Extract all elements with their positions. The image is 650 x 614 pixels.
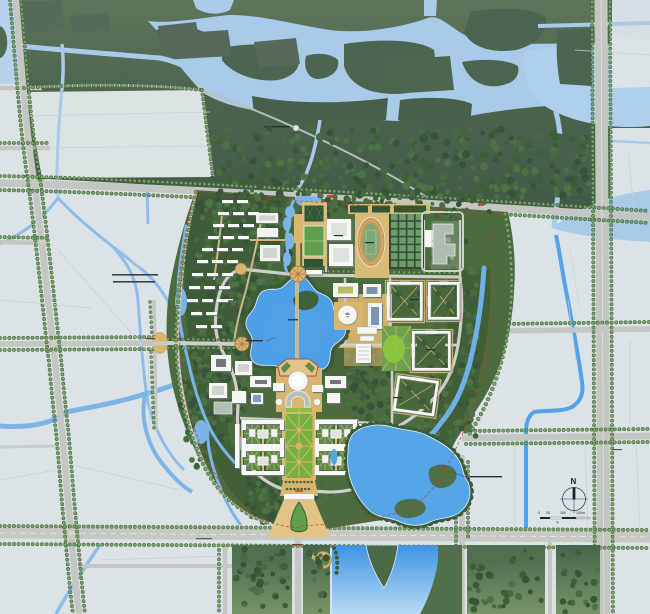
svg-text:150m: 150m <box>576 511 585 515</box>
svg-text:0: 0 <box>538 511 540 515</box>
svg-text:m: m <box>556 521 559 525</box>
svg-text:20: 20 <box>546 511 550 515</box>
svg-text:100: 100 <box>560 511 566 515</box>
svg-text:N: N <box>571 477 577 486</box>
